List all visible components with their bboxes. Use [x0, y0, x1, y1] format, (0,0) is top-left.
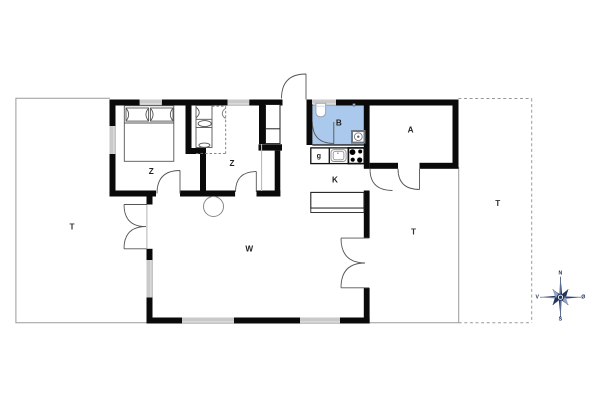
svg-text:T: T [69, 223, 74, 232]
svg-text:N: N [559, 270, 563, 276]
svg-text:Z: Z [229, 159, 234, 168]
svg-text:g: g [317, 151, 321, 160]
svg-text:Z: Z [149, 167, 154, 176]
svg-text:T: T [495, 199, 500, 208]
svg-text:T: T [411, 228, 416, 237]
svg-text:S: S [559, 317, 563, 323]
svg-text:W: W [245, 245, 253, 254]
svg-text:V: V [535, 294, 539, 300]
svg-text:B: B [336, 119, 342, 128]
svg-text:K: K [332, 175, 338, 184]
svg-text:A: A [408, 126, 414, 135]
svg-text:Ø: Ø [581, 294, 585, 300]
